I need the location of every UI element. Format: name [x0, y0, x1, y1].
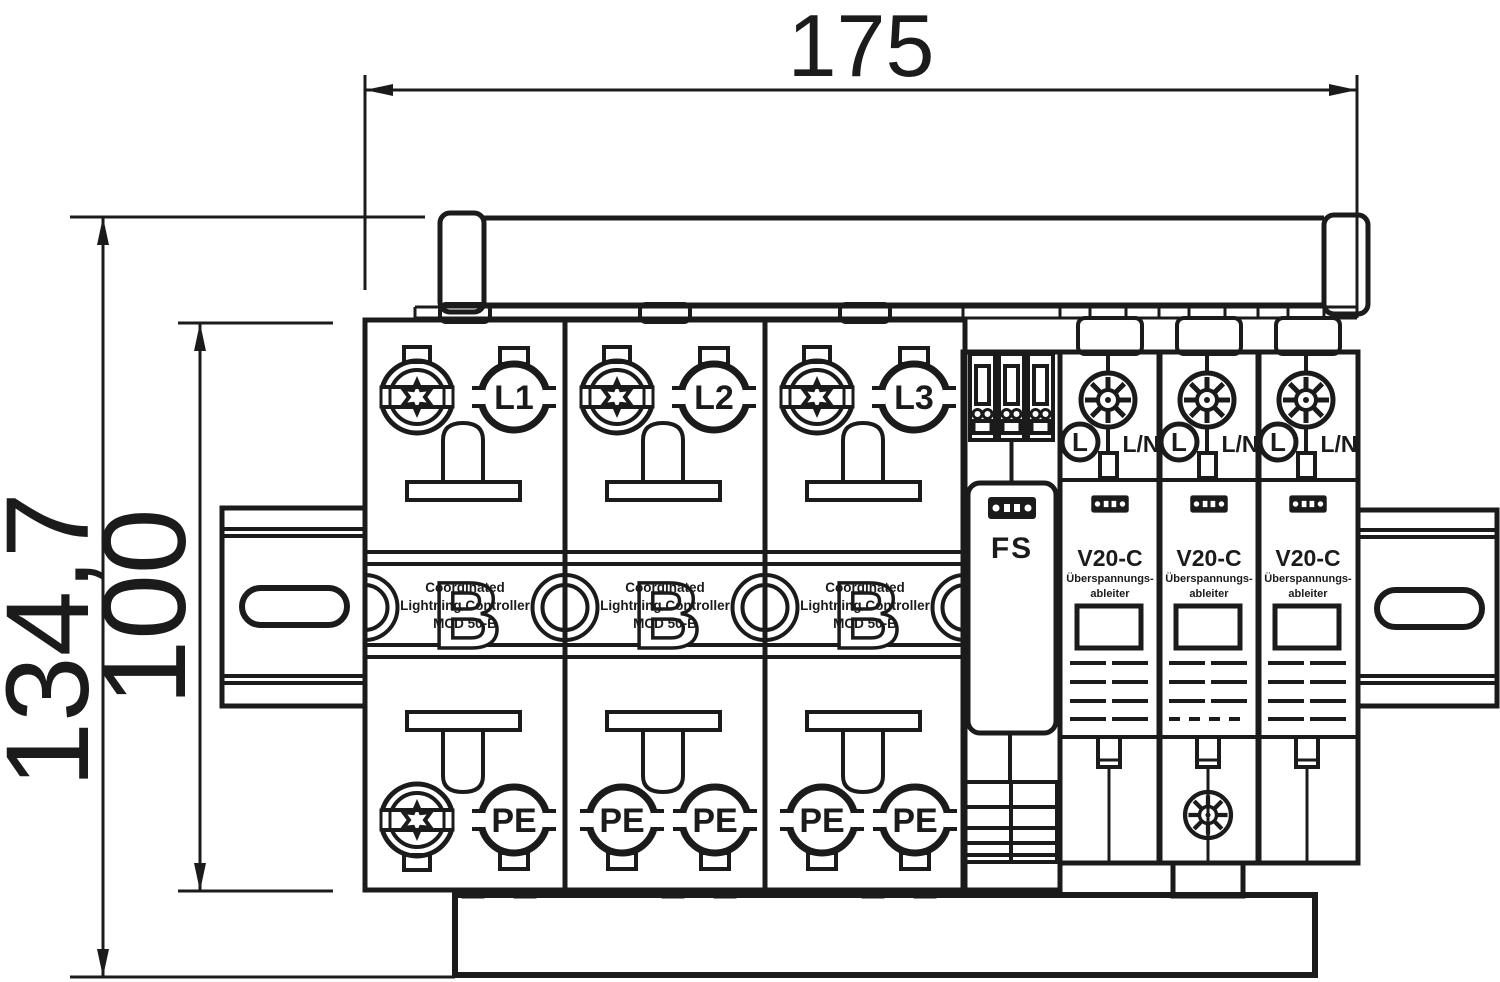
dim-height-inner-label: 100 [79, 509, 211, 706]
dimension-width: 175 [365, 0, 1357, 317]
terminal-pe-label: PE [692, 802, 737, 840]
v20c-subtitle2: ableiter [1288, 588, 1328, 600]
arrow-left-icon [365, 84, 393, 96]
v20c-module-1: L L/N V20-C Überspannungs- ableiter [1060, 307, 1160, 863]
arrow-down-icon [194, 863, 206, 891]
mcd-text-line1: Coordinated [425, 580, 505, 595]
mcd-text-line2: Lightning Controller [600, 598, 730, 613]
din-rail-left [222, 508, 365, 706]
v20c-module-2: L L/N V20-C Überspannungs- ableiter [1159, 307, 1259, 863]
terminal-l-label: L [1270, 427, 1286, 457]
v20c-subtitle1: Überspannungs- [1066, 572, 1154, 585]
dimension-height-inner: 100 [79, 323, 333, 891]
status-window [1077, 606, 1141, 648]
terminal-pe-label: PE [491, 802, 536, 840]
screw-terminal-icon [373, 784, 461, 870]
arrow-up-icon [194, 323, 206, 351]
wire-label: L/N [1320, 431, 1357, 457]
fs-connector [1028, 354, 1053, 440]
gear-screw-icon [1185, 792, 1231, 838]
top-plug [1276, 318, 1340, 354]
v20c-title: V20-C [1077, 545, 1142, 571]
wire-label: L/N [1122, 431, 1159, 457]
mcd-text-line1: Coordinated [625, 580, 705, 595]
v20c-subtitle1: Überspannungs- [1165, 572, 1253, 585]
terminal-l1-label: L1 [494, 379, 534, 417]
fs-front-panel [968, 483, 1056, 733]
gear-screw-icon [1081, 373, 1135, 427]
terminal-l-label: L [1171, 427, 1187, 457]
wire-label: L/N [1221, 431, 1258, 457]
v20c-subtitle2: ableiter [1090, 588, 1130, 600]
status-window [1176, 606, 1240, 648]
rating-plate-icon [988, 497, 1036, 519]
mcd-module-1: B Coordinated Lightning Controller MCD 5… [365, 304, 565, 897]
mcd-module-3: B Coordinated Lightning Controller MCD 5… [765, 304, 965, 897]
dim-width-label: 175 [788, 0, 935, 95]
fs-module: FS [963, 352, 1060, 890]
release-tab-bottom [443, 730, 483, 792]
screw-terminal-icon [373, 347, 461, 433]
rail-slot-right [1377, 590, 1482, 627]
base-plate [455, 895, 1315, 975]
rating-plate-icon [1190, 495, 1227, 512]
terminal-pe-label: PE [599, 802, 644, 840]
mcd-text-line1: Coordinated [825, 580, 905, 595]
release-tab-top [443, 423, 483, 483]
mcd-text-line2: Lightning Controller [800, 598, 930, 613]
mcd-text-line2: Lightning Controller [400, 598, 530, 613]
release-tab-top [843, 423, 883, 483]
rating-plate-icon [1289, 495, 1326, 512]
top-plug [1177, 318, 1241, 354]
v20c-title: V20-C [1275, 545, 1340, 571]
gear-screw-icon [1279, 373, 1333, 427]
terminal-l-label: L [1072, 427, 1088, 457]
busbar-end-right [1324, 215, 1368, 314]
release-tab-bottom [843, 730, 883, 792]
gear-screw-icon [1180, 373, 1234, 427]
screw-terminal-icon [573, 347, 661, 433]
din-rail-right [1358, 510, 1497, 706]
v20c-title: V20-C [1176, 545, 1241, 571]
mcd-module-2: B Coordinated Lightning Controller MCD 5… [565, 304, 765, 897]
v20c-subtitle1: Überspannungs- [1264, 572, 1352, 585]
fs-connector [999, 354, 1024, 440]
mcd-text-line3: MCD 50-B [433, 616, 497, 631]
drawing-svg: B Coordinated Lightning Controller MCD 5… [0, 0, 1500, 982]
release-tab-top [643, 423, 683, 483]
status-window [1275, 606, 1339, 648]
base-block [1173, 863, 1243, 896]
arrow-down-icon [97, 949, 109, 977]
arrow-right-icon [1329, 84, 1357, 96]
busbar-end-left [440, 213, 484, 312]
mcd-text-line3: MCD 50-B [633, 616, 697, 631]
rail-slot-left [242, 588, 347, 625]
screw-terminal-icon [773, 347, 861, 433]
top-plug [1078, 318, 1142, 354]
v20c-subtitle2: ableiter [1189, 588, 1229, 600]
terminal-l2-label: L2 [694, 379, 734, 417]
terminal-pe-label: PE [892, 802, 937, 840]
release-tab-bottom [643, 730, 683, 792]
terminal-pe-label: PE [799, 802, 844, 840]
busbar [440, 213, 1368, 314]
rating-plate-icon [1091, 495, 1128, 512]
arrow-up-icon [97, 217, 109, 245]
v20c-module-3: L L/N V20-C Überspannungs- ableiter [1258, 307, 1358, 863]
fs-label: FS [991, 532, 1033, 565]
mcd-text-line3: MCD 50-B [833, 616, 897, 631]
terminal-l3-label: L3 [894, 379, 934, 417]
dimensional-drawing: B Coordinated Lightning Controller MCD 5… [0, 0, 1500, 982]
fs-connector [970, 354, 995, 440]
